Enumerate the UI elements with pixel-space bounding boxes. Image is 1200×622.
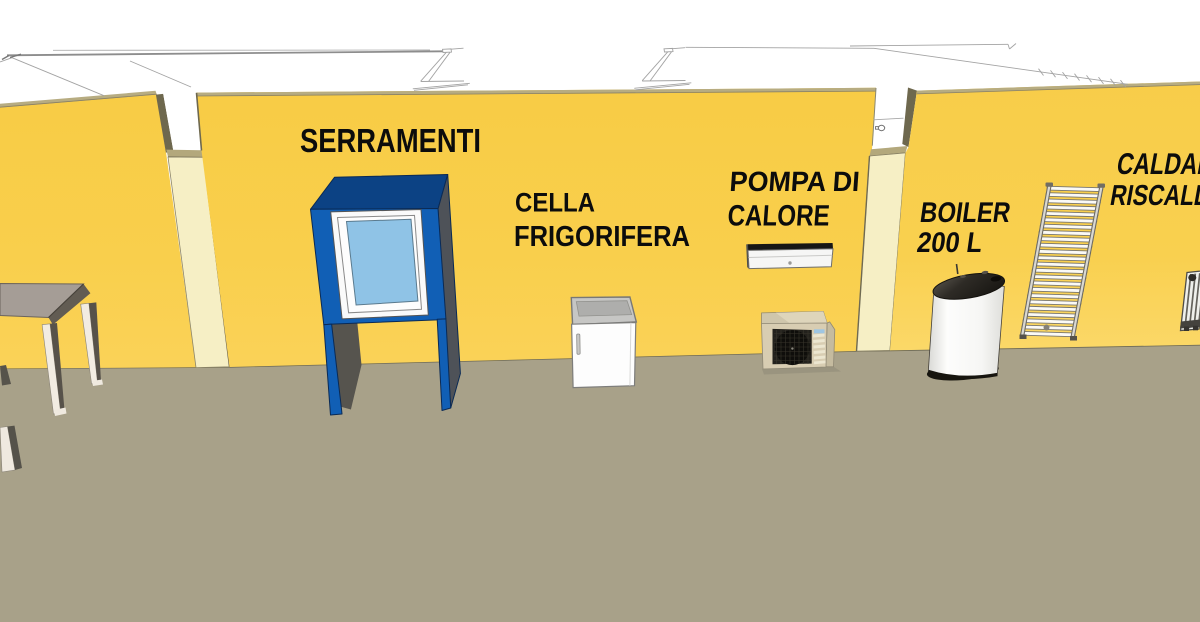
svg-text:CELLA: CELLA (515, 188, 595, 218)
svg-text:SERRAMENTI: SERRAMENTI (300, 123, 481, 160)
svg-text:POMPA DI: POMPA DI (729, 166, 861, 197)
svg-text:CALORE: CALORE (727, 200, 831, 233)
svg-text:RISCALD: RISCALD (1108, 180, 1200, 212)
svg-text:FRIGORIFERA: FRIGORIFERA (514, 221, 690, 253)
svg-text:BOILER: BOILER (918, 197, 1013, 229)
svg-text:CALDAI: CALDAI (1114, 148, 1200, 181)
svg-text:200 L: 200 L (915, 227, 984, 259)
